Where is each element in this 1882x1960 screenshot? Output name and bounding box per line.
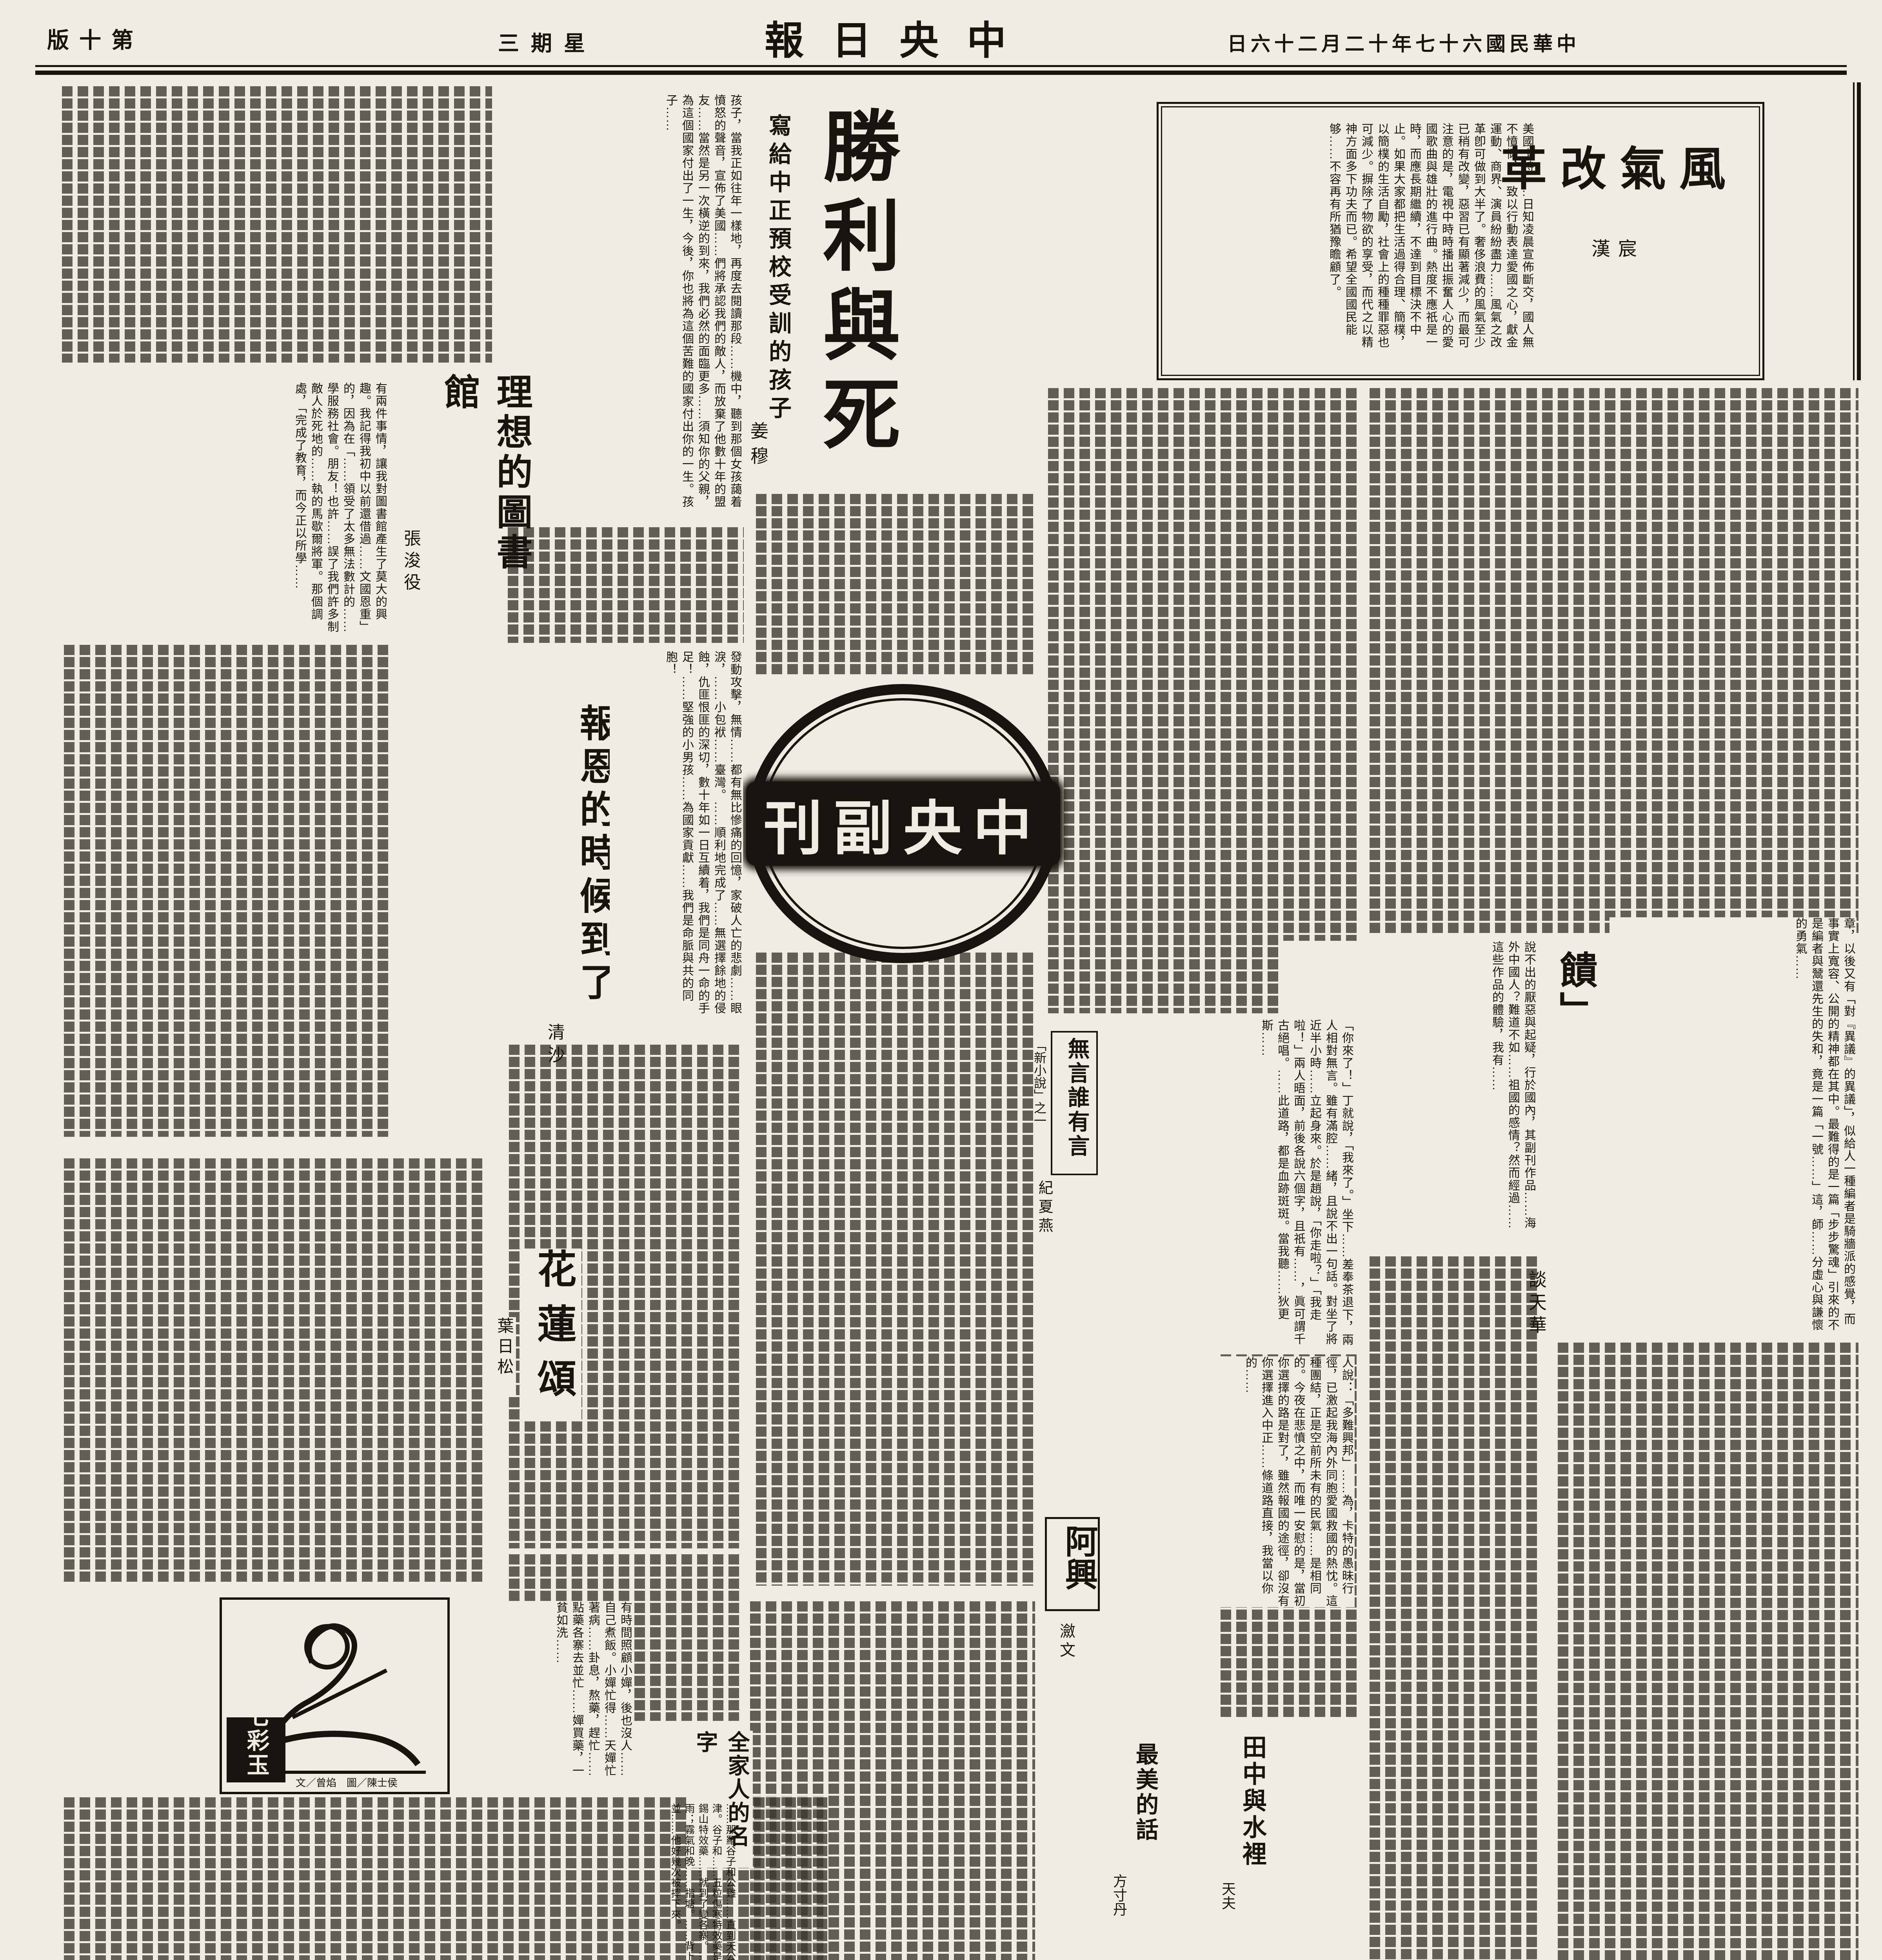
zuimei-author: 方寸丹 bbox=[1109, 1874, 1129, 1936]
svg-text:七彩玉: 七彩玉 bbox=[243, 1704, 270, 1777]
wuyan-title: 無言誰有言 bbox=[1061, 1037, 1093, 1167]
axing-title-box: 阿興 bbox=[1045, 1517, 1100, 1611]
hualian-author: 葉日松 bbox=[492, 1317, 516, 1396]
header-rule-thin bbox=[35, 65, 1847, 67]
tianzhong-author: 天夫 bbox=[1217, 1882, 1238, 1929]
text-columns-b1 bbox=[503, 525, 744, 643]
lixiang-title: 理想的圖書館 bbox=[433, 373, 538, 577]
wuyan-author: 紀夏燕 bbox=[1034, 1180, 1055, 1243]
axing-body: 人說：「多難興邦」……為，卡特的愚昧行徑，已激起我海內外同胞愛國救國的熱忱。這種… bbox=[1104, 1356, 1355, 1607]
text-columns-e1 bbox=[1364, 386, 1858, 933]
text-columns-hualian-poem bbox=[59, 1156, 482, 1584]
text-columns-topleft bbox=[57, 84, 492, 363]
baoen-author: 清沙 bbox=[542, 1023, 567, 1094]
masthead-title: 中央日報 bbox=[765, 9, 1034, 65]
text-columns-c1 bbox=[751, 492, 1033, 674]
text-columns-e2 bbox=[1364, 1254, 1541, 1960]
fengqi-title: 風氣改革 bbox=[1501, 131, 1739, 198]
shengli-title: 勝利與死 bbox=[798, 106, 910, 482]
text-columns-left-mid bbox=[59, 643, 388, 1137]
supplement-logo-text: 中央副刊 bbox=[763, 781, 1043, 866]
wuyan-subtitle: 「新小說」之一 bbox=[1030, 1039, 1048, 1168]
axing-author: 瀲文 bbox=[1055, 1623, 1077, 1678]
baoen-body: 發動攻擊，無情……都有無比慘痛的回憶，家破人亡的悲劇……眼淚，……小包袱……臺灣… bbox=[610, 651, 743, 1023]
hualian-title: 花蓮頌 bbox=[525, 1249, 581, 1421]
text-columns-c2 bbox=[751, 951, 1037, 1586]
supplement-logo-wreath: 中央副刊 bbox=[747, 684, 1059, 963]
huikui-body-right: 章，以後又有「對『異議』的異議」，似給人一種編者是騎牆派的感覺，而事實上寬容、公… bbox=[1610, 917, 1857, 1333]
axing-title: 阿興 bbox=[1055, 1524, 1102, 1603]
shengli-body: 孩子，當我正如往年一樣地，再度去閱讀那段……機中，聽到那個女孩藹着憤怒的聲音，宣… bbox=[506, 94, 743, 510]
shengli-author: 姜穆 bbox=[745, 421, 771, 500]
supplement-logo-band: 中央副刊 bbox=[746, 782, 1060, 866]
newspaper-page: { "page": { "masthead": "中央日報", "edition… bbox=[0, 0, 1882, 1960]
lixiang-body: 有兩件事情，讓我對圖書館產生了莫大的興趣。我記得我初中以前還借過……文國恩重」的… bbox=[59, 382, 388, 633]
zuimei-title: 最美的話 bbox=[1128, 1742, 1161, 1860]
masthead-date: 中華民國六十七年十二月二十六日 bbox=[1227, 28, 1580, 56]
qicaiyu-illustration: 七彩玉 bbox=[222, 1600, 443, 1787]
fengqi-body: 美國卡特……日知凌晨宣佈斷交，國人無不憤慨，一致以行動表達愛國之心，獻金運動、商… bbox=[1174, 123, 1535, 358]
lixiang-author: 張浚役 bbox=[398, 529, 423, 631]
weekday-label: 星期三 bbox=[498, 26, 597, 57]
fengqi-author: 漢宸 bbox=[1591, 233, 1645, 261]
text-columns-e3 bbox=[1553, 1341, 1858, 1960]
huikui-author: 談天華 bbox=[1523, 1270, 1549, 1356]
fengqi-article-box: 風氣改革 漢宸 美國卡特……日知凌晨宣佈斷交，國人無不憤慨，一致以行動表達愛國之… bbox=[1157, 102, 1764, 380]
wuyan-body: 「你來了！」丁就說，「我來了。」坐下……差奉茶退下，兩人相對無言。雖有滿腔……緒… bbox=[1104, 1019, 1355, 1348]
qicaiyu-body-bottom: ……那羅谷子和公雞……直到天公……問津。谷子和……五粒傷寒特效藥是……回莫錫山特… bbox=[94, 1803, 737, 1960]
qicaiyu-illustration-frame: 七彩玉 文／曾焰 圖／陳士侯 bbox=[220, 1597, 450, 1794]
qicaiyu-credits: 文／曾焰 圖／陳士侯 bbox=[292, 1775, 401, 1789]
qicaiyu-body-right: 有時間照顧小嬋，後也沒人……自己煮飯。小嬋忙得……天嬋忙著病……卦息，熬藥，趕忙… bbox=[451, 1601, 633, 1786]
edition-label: 第十版 bbox=[47, 23, 144, 54]
page-edge-ornament bbox=[1853, 82, 1861, 380]
wuyan-title-box: 無言誰有言 bbox=[1051, 1031, 1098, 1175]
text-columns-d1 bbox=[1043, 386, 1357, 1013]
shengli-subtitle: 寫給中正預校受訓的孩子 bbox=[761, 114, 794, 459]
tianzhong-title: 田中與水裡 bbox=[1234, 1735, 1270, 1872]
header-rule-thick bbox=[35, 71, 1847, 75]
